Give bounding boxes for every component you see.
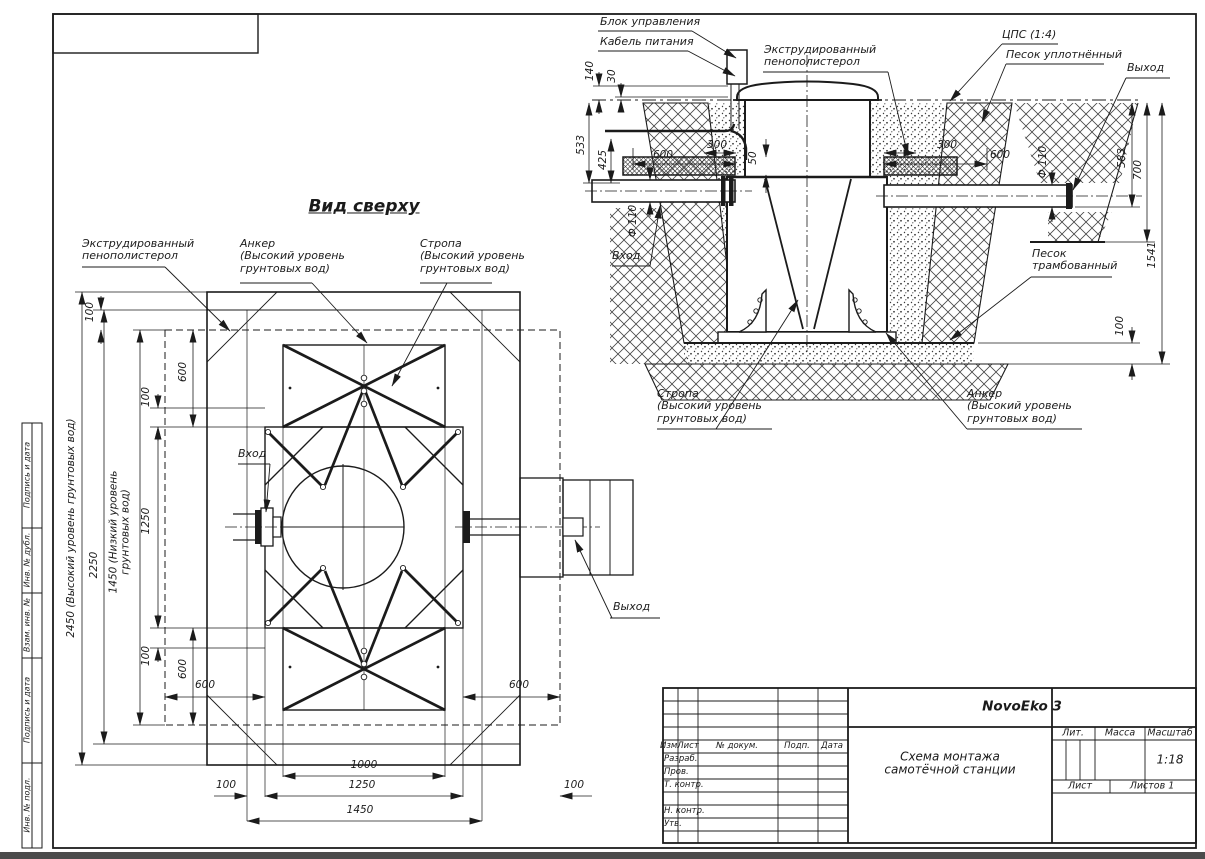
dim-600-lower: 600 xyxy=(178,659,190,679)
tank-lid xyxy=(737,82,878,101)
dim-100-lower: 100 xyxy=(141,646,153,666)
dim-600-upper: 600 xyxy=(178,362,190,382)
dim-583: 583 xyxy=(1117,148,1129,168)
dim-2450: 2450 (Высокий уровень грунтовых вод) xyxy=(66,418,78,637)
sand-rammed-label: Песок трамбованный xyxy=(1032,248,1117,273)
dim-2250: 2250 xyxy=(89,552,101,579)
dim-1450-groundwater: 1450 (Низкий уровень грунтовых вод) xyxy=(108,471,132,594)
dim-100-bottom-left: 100 xyxy=(216,780,236,792)
col-list: Лист xyxy=(677,742,699,752)
dim-dia110-inlet: Ф 110 xyxy=(628,205,640,237)
dim-140: 140 xyxy=(585,61,597,81)
col-sign: Подп. xyxy=(784,742,810,752)
prop-mass: Масса xyxy=(1105,729,1135,740)
outlet-label-plan: Выход xyxy=(613,601,650,613)
drawing-graphics xyxy=(0,0,1205,859)
dim-50: 50 xyxy=(748,151,760,164)
sling-label-section: Стропа (Высокий уровень грунтовых вод) xyxy=(657,388,762,425)
foam-label-plan: Экструдированный пенополистерол xyxy=(82,238,194,263)
dim-1000: 1000 xyxy=(351,760,378,772)
row-ncontrol: Н. контр. xyxy=(664,807,705,817)
prop-lit: Лит. xyxy=(1062,729,1084,740)
stamp-field-sign-date-1: Подпись и дата xyxy=(24,442,33,508)
foam-plate-outline xyxy=(207,292,520,765)
dim-30: 30 xyxy=(607,69,619,82)
bottom-bar xyxy=(0,852,1205,859)
outlet-trench-upper xyxy=(1014,103,1138,183)
dim-533: 533 xyxy=(576,135,588,155)
drawing-sheet: Блок управления Кабель питания Экструдир… xyxy=(0,0,1205,859)
prop-sheets: Листов 1 xyxy=(1130,782,1175,793)
foam-label-section: Экструдированный пенополистерол xyxy=(764,44,876,69)
dim-1250-vert: 1250 xyxy=(141,508,153,535)
product-name: NovoEko 3 xyxy=(982,699,1062,714)
dim-dia110-outlet: Ф 110 xyxy=(1038,146,1050,178)
dim-100-top: 100 xyxy=(85,302,97,322)
xps-layer-right xyxy=(884,157,957,175)
inlet-plan xyxy=(225,508,300,546)
plan-view xyxy=(75,267,660,821)
dim-1541: 1541 xyxy=(1147,242,1159,269)
anchor-label-section: Анкер (Высокий уровень грунтовых вод) xyxy=(967,388,1072,425)
prop-scale: Масштаб xyxy=(1147,729,1192,740)
row-developed: Разраб. xyxy=(664,755,697,765)
inlet-pipe-section xyxy=(585,176,752,206)
stamp-field-inv-dupl: Инв. № дубл. xyxy=(24,533,33,588)
plan-view-title: Вид сверху xyxy=(308,197,419,216)
inlet-label-section: Вход xyxy=(612,250,640,262)
stamp-field-sign-date-2: Подпись и дата xyxy=(24,677,33,743)
dim-600-bottom-left: 600 xyxy=(195,680,215,692)
col-date: Дата xyxy=(821,742,843,752)
dim-100-upper: 100 xyxy=(141,387,153,407)
scale-value: 1:18 xyxy=(1157,753,1184,766)
stamp-field-inv-podl: Инв. № подл. xyxy=(24,777,33,832)
row-approved: Утв. xyxy=(664,820,682,830)
document-title: Схема монтажа самотёчной станции xyxy=(884,751,1015,778)
row-checked: Пров. xyxy=(664,768,689,778)
prop-sheet: Лист xyxy=(1068,782,1092,793)
control-unit-label: Блок управления xyxy=(600,16,700,28)
dim-1450-bottom: 1450 xyxy=(347,805,374,817)
col-doc: № докум. xyxy=(716,742,758,752)
dim-425: 425 xyxy=(598,150,610,170)
power-cable-label: Кабель питания xyxy=(600,36,694,48)
dim-600-bottom-right: 600 xyxy=(509,680,529,692)
dim-300-right: 300 xyxy=(937,140,957,152)
sling-label-plan: Стропа (Высокий уровень грунтовых вод) xyxy=(420,238,525,275)
dim-1250-bottom: 1250 xyxy=(349,780,376,792)
row-tcontrol: Т. контр. xyxy=(664,781,704,791)
sand-bed xyxy=(684,343,974,364)
sand-compacted-label: Песок уплотнённый xyxy=(1006,49,1122,61)
outlet-label-section: Выход xyxy=(1127,62,1164,74)
xps-layer-left xyxy=(623,157,735,175)
section-view xyxy=(583,31,1170,429)
sheet-frame xyxy=(22,14,1196,848)
dim-600-right: 600 xyxy=(990,150,1010,162)
dim-600-left: 600 xyxy=(653,150,673,162)
anchor-label-plan: Анкер (Высокий уровень грунтовых вод) xyxy=(240,238,345,275)
cps-label: ЦПС (1:4) xyxy=(1002,29,1056,41)
plan-leaders xyxy=(82,267,660,618)
inlet-label-plan: Вход xyxy=(238,448,266,460)
outlet-pipe-section xyxy=(876,183,1142,209)
stamp-field-vzam-inv: Взам. инв. № xyxy=(24,598,33,652)
dim-100-bottom-right: 100 xyxy=(564,780,584,792)
dim-100-section: 100 xyxy=(1115,316,1127,336)
dim-700: 700 xyxy=(1133,160,1145,180)
dim-300-left: 300 xyxy=(707,140,727,152)
